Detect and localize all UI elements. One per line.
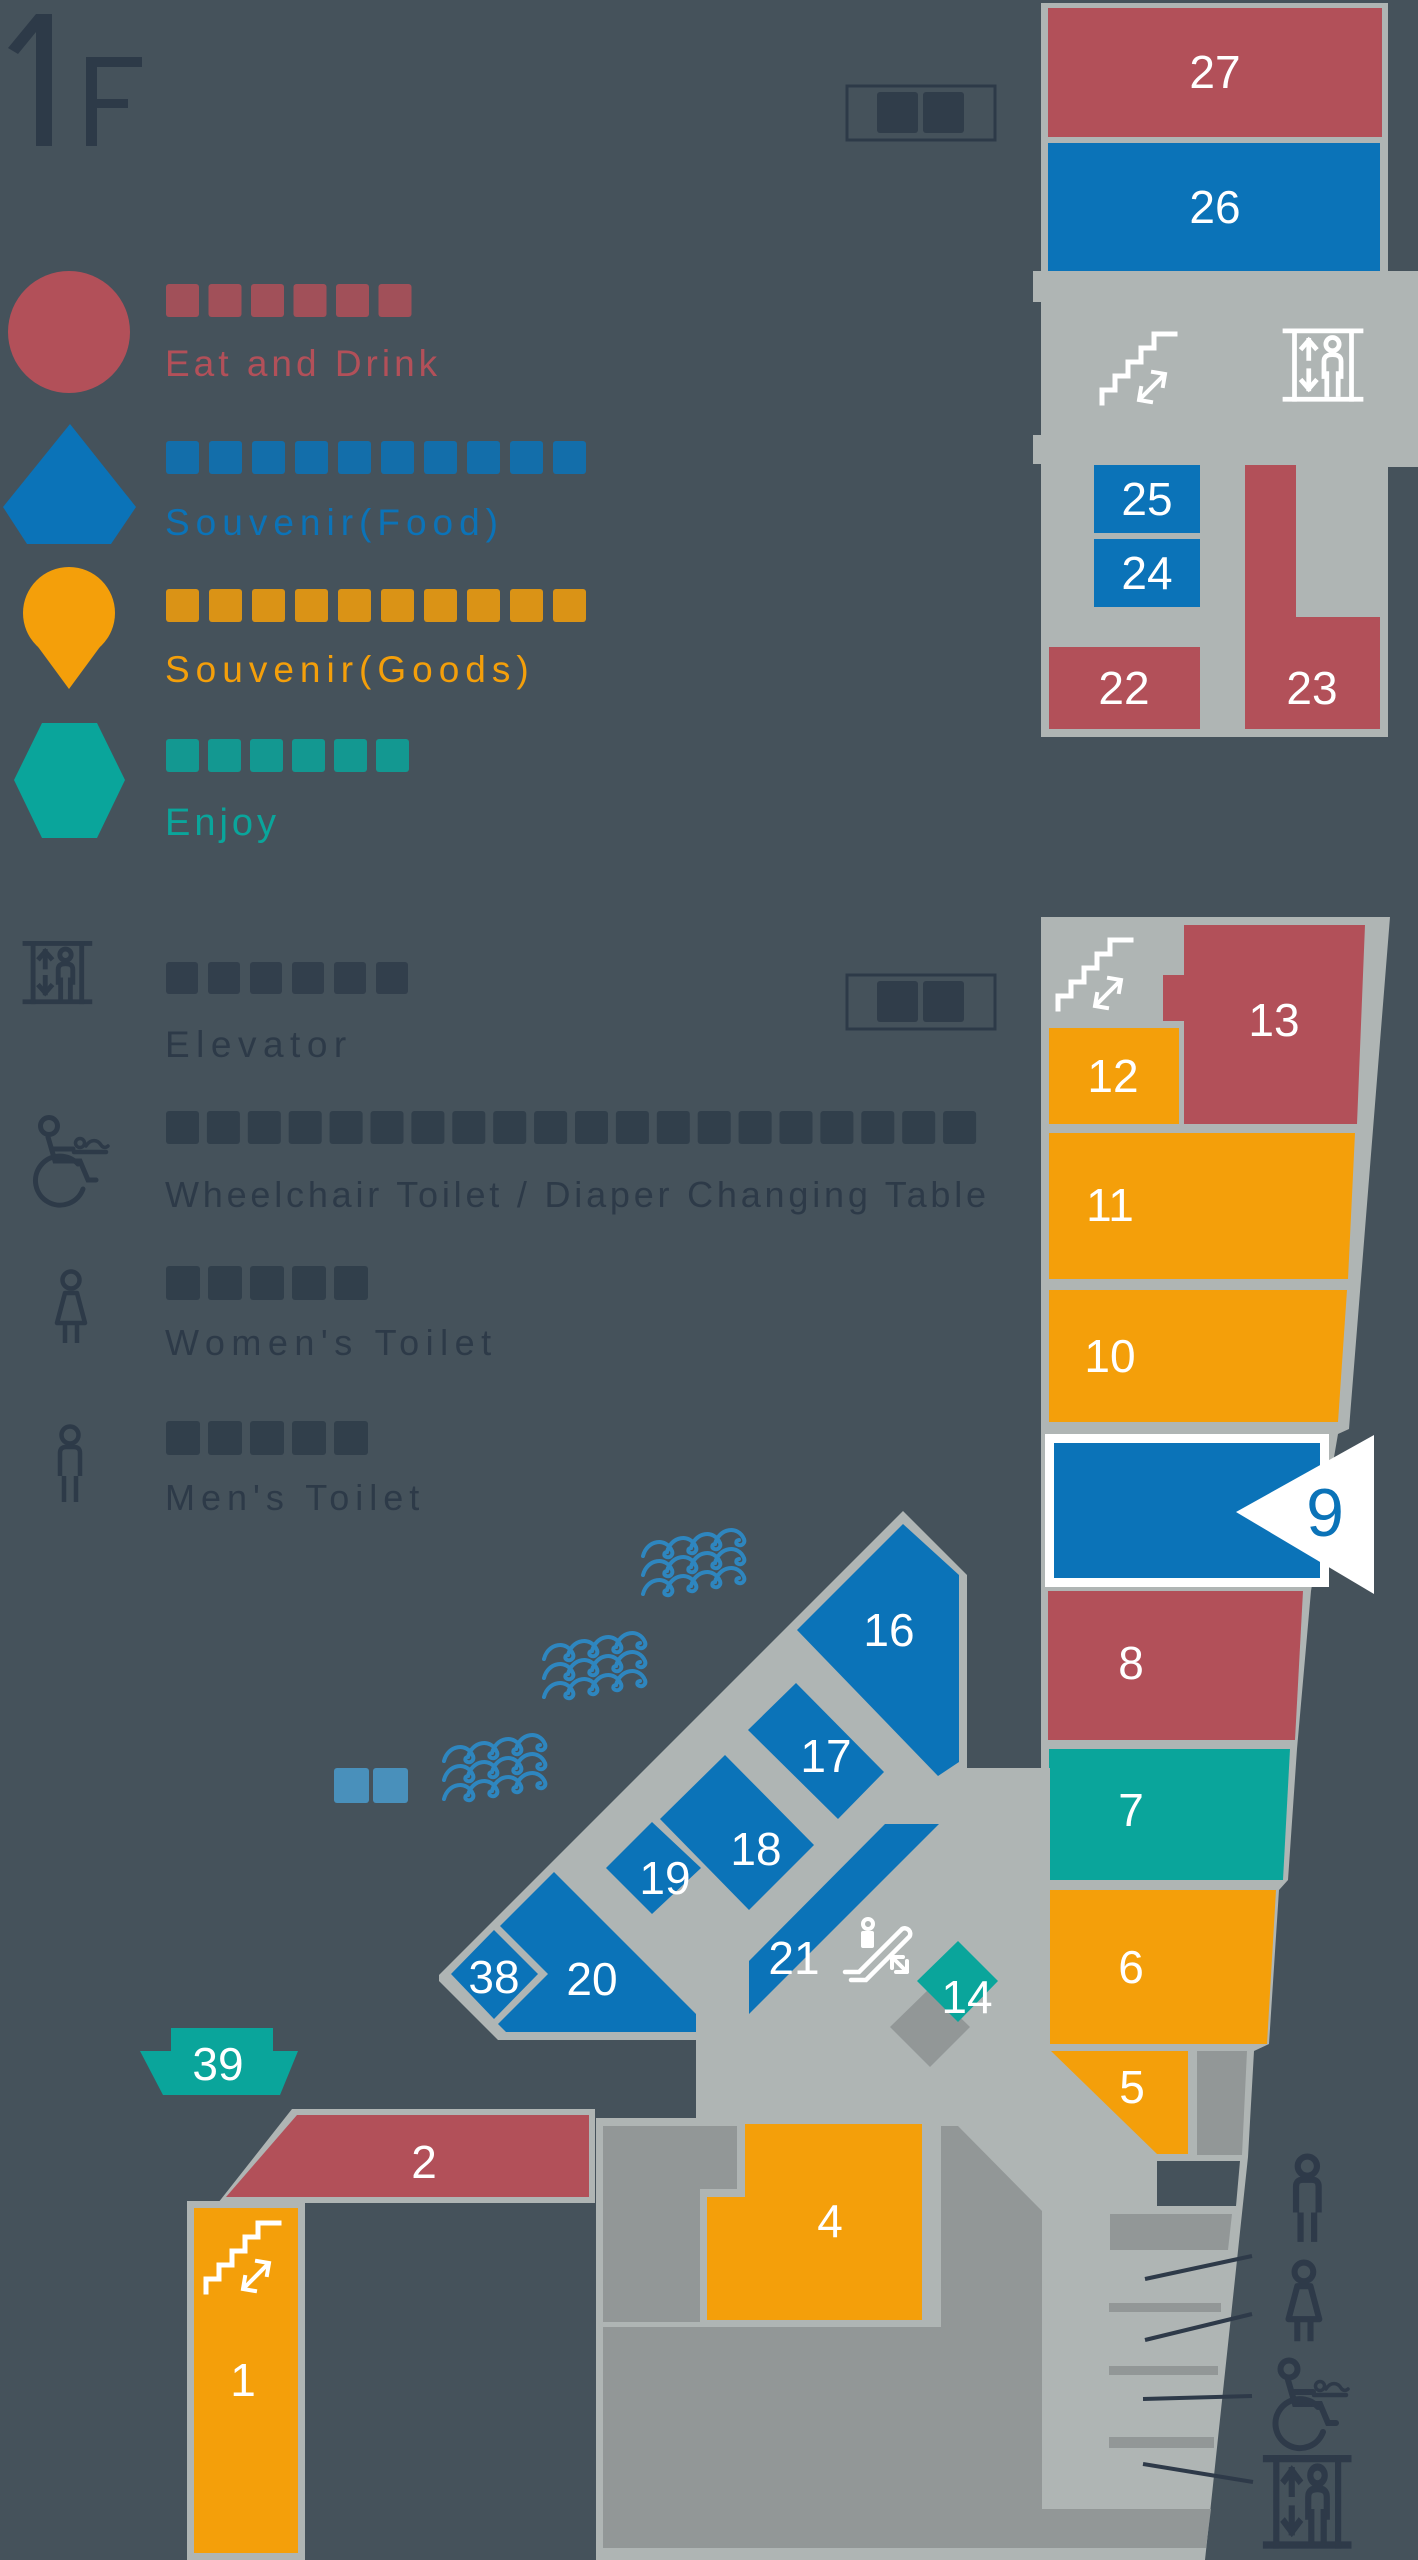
- svg-text:9: 9: [1306, 1475, 1344, 1551]
- svg-text:23: 23: [1286, 662, 1337, 714]
- svg-text:22: 22: [1098, 662, 1149, 714]
- svg-text:26: 26: [1189, 181, 1240, 233]
- svg-text:12: 12: [1087, 1050, 1138, 1102]
- svg-text:20: 20: [566, 1953, 617, 2005]
- svg-text:Wheelchair Toilet / Diaper Cha: Wheelchair Toilet / Diaper Changing Tabl…: [165, 1174, 990, 1215]
- svg-text:13: 13: [1248, 994, 1299, 1046]
- svg-text:14: 14: [941, 1971, 992, 2023]
- svg-text:5: 5: [1119, 2061, 1145, 2113]
- svg-text:27: 27: [1189, 46, 1240, 98]
- svg-text:1: 1: [230, 2354, 256, 2406]
- svg-text:Souvenir(Food): Souvenir(Food): [165, 502, 504, 543]
- svg-text:10: 10: [1084, 1330, 1135, 1382]
- svg-text:24: 24: [1121, 547, 1172, 599]
- svg-text:Enjoy: Enjoy: [165, 802, 280, 844]
- svg-text:19: 19: [639, 1852, 690, 1904]
- svg-text:8: 8: [1118, 1637, 1144, 1689]
- svg-text:6: 6: [1118, 1941, 1144, 1993]
- svg-text:38: 38: [468, 1951, 519, 2003]
- svg-text:16: 16: [863, 1604, 914, 1656]
- svg-text:Elevator: Elevator: [165, 1024, 353, 1065]
- svg-text:Women's Toilet: Women's Toilet: [165, 1322, 498, 1363]
- svg-text:39: 39: [192, 2038, 243, 2090]
- svg-text:Eat and Drink: Eat and Drink: [165, 343, 441, 384]
- svg-text:25: 25: [1121, 473, 1172, 525]
- svg-text:21: 21: [768, 1932, 819, 1984]
- svg-text:2: 2: [411, 2136, 437, 2188]
- svg-text:Men's Toilet: Men's Toilet: [165, 1477, 425, 1518]
- svg-text:Souvenir(Goods): Souvenir(Goods): [165, 649, 535, 690]
- svg-text:11: 11: [1086, 1179, 1134, 1231]
- svg-text:4: 4: [817, 2195, 843, 2247]
- svg-text:7: 7: [1118, 1784, 1144, 1836]
- svg-text:18: 18: [730, 1823, 781, 1875]
- svg-text:17: 17: [800, 1730, 851, 1782]
